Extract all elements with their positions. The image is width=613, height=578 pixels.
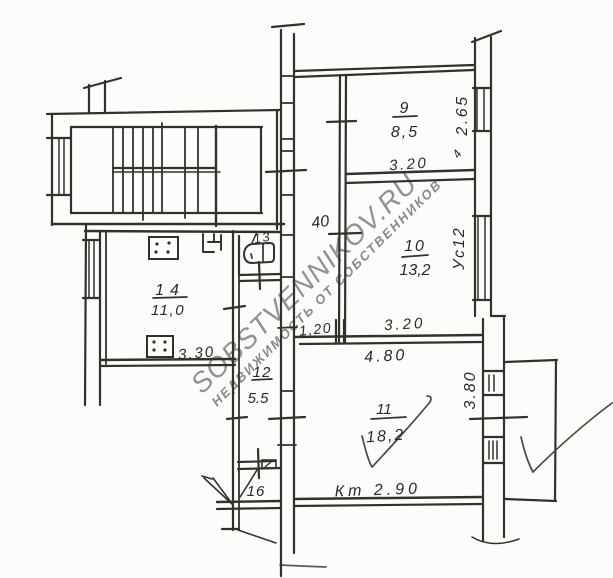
svg-text:16: 16 [247,483,266,500]
svg-text:13: 13 [252,229,272,247]
svg-text:11: 11 [376,401,392,418]
svg-text:40: 40 [310,213,330,232]
svg-text:2.65: 2.65 [454,94,471,136]
svg-text:14: 14 [155,282,185,299]
svg-text:3.20: 3.20 [389,155,429,175]
svg-text:3.20: 3.20 [384,315,426,334]
svg-text:12: 12 [253,364,272,381]
svg-text:18,2: 18,2 [366,427,406,447]
svg-text:Кт 2.90: Кт 2.90 [334,481,421,501]
svg-text:10: 10 [404,238,426,255]
svg-text:4.80: 4.80 [364,347,408,366]
svg-text:8,5: 8,5 [391,124,419,141]
svg-text:9: 9 [400,100,409,117]
svg-text:Ус12: Ус12 [451,226,468,271]
svg-text:5.5: 5.5 [248,390,270,407]
svg-text:11,0: 11,0 [151,302,185,319]
svg-text:3.80: 3.80 [462,370,479,409]
svg-text:13,2: 13,2 [399,262,430,279]
svg-text:3.30: 3.30 [177,343,216,363]
